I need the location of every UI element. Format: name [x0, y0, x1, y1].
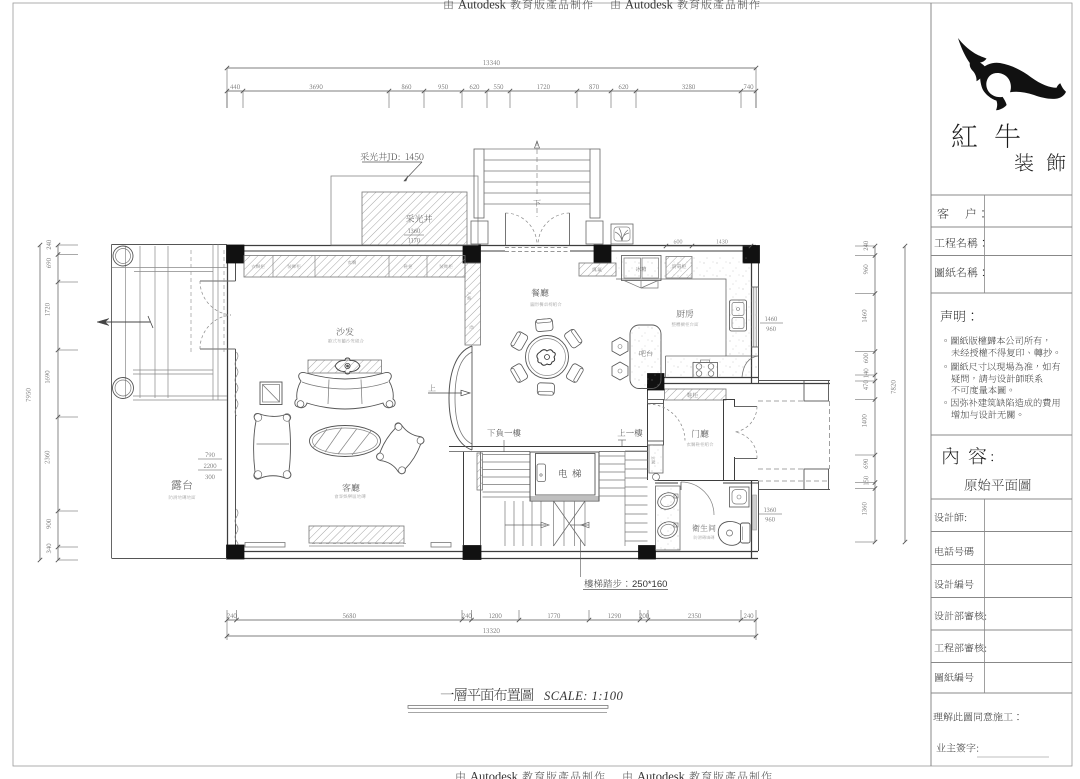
svg-text:Autodesk: Autodesk: [625, 0, 674, 12]
svg-text:Autodesk: Autodesk: [470, 770, 519, 779]
svg-text:Autodesk: Autodesk: [637, 770, 686, 779]
svg-text:250*160: 250*160: [632, 579, 667, 590]
svg-text:SCALE: 1:100: SCALE: 1:100: [544, 689, 624, 703]
svg-text:Autodesk: Autodesk: [458, 0, 507, 12]
